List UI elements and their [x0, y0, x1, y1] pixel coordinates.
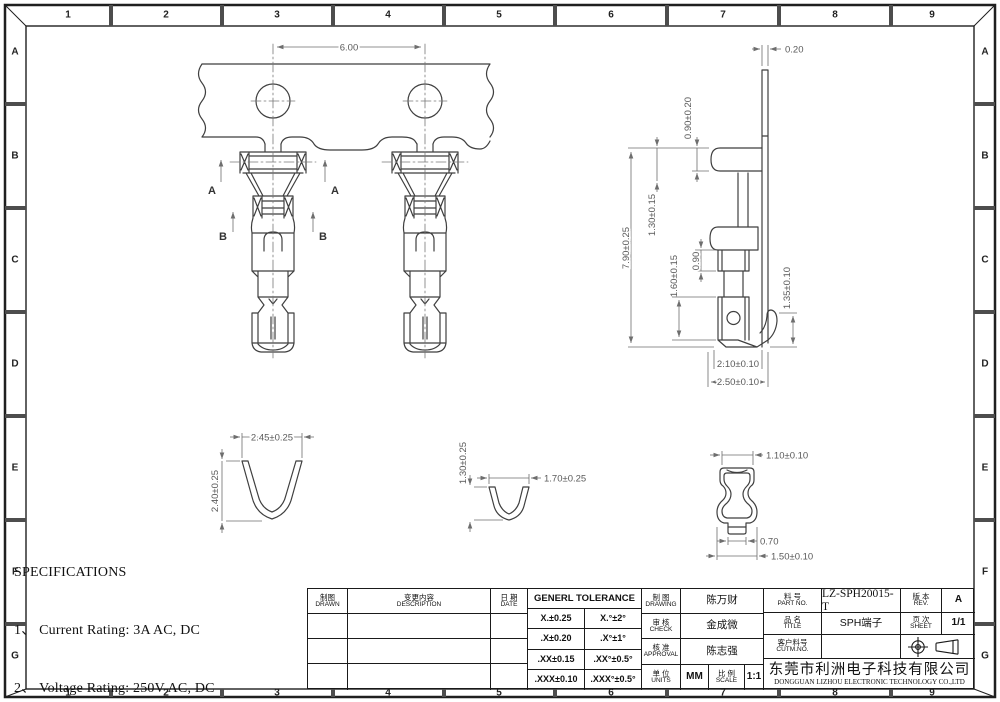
grid-row-label: D: [11, 359, 18, 370]
title-block: 制图 DRAWN 变更内容 DESCRIPTION 日 期 DATE GENER…: [307, 588, 974, 689]
revision-row-cell: [348, 639, 491, 664]
grid-column-label: 9: [929, 10, 935, 21]
grid-column-label: 1: [65, 10, 71, 21]
customer-no-label: 客户料号CUTM.NO.: [764, 635, 822, 659]
check-name: 金成微: [681, 614, 764, 639]
tolerance-title: GENERL TOLERANCE: [534, 594, 635, 604]
third-angle-projection-icon: [906, 636, 970, 658]
revision-row-cell: [348, 664, 491, 690]
revision-row-cell: [491, 664, 528, 690]
company-name-en: DONGGUAN LIZHOU ELECTRONIC TECHNOLOGY CO…: [774, 679, 965, 686]
side-view: [710, 70, 777, 347]
dim-210: 2.10±0.10: [717, 359, 759, 370]
revision-row-cell: [308, 664, 348, 690]
grid-column-label: 6: [608, 10, 614, 21]
description-label-en: DESCRIPTION: [397, 602, 441, 609]
grid-row-label: G: [981, 651, 989, 662]
tolerance-cell: .X±0.20: [528, 629, 585, 650]
scale-label: 比 例SCALE: [709, 665, 745, 690]
crimp-hole: [727, 312, 740, 325]
dim-250: 2.50±0.10: [717, 377, 759, 388]
dim-overall-height: 7.90±0.25: [621, 227, 632, 269]
part-name-value: SPH端子: [822, 613, 901, 635]
grid-column-label: 8: [832, 10, 838, 21]
grid-row-label: C: [11, 255, 18, 266]
rear-view: [717, 468, 757, 534]
grid-column-label: 7: [720, 10, 726, 21]
rev-label: 版 本REV.: [901, 589, 942, 613]
grid-column-label: 5: [496, 10, 502, 21]
dim-090: 0.90: [691, 252, 702, 271]
dim-pitch: 6.00: [340, 43, 359, 54]
dim-secB-height: 1.30±0.25: [458, 442, 469, 484]
dim-secA-width: 2.45±0.25: [251, 433, 293, 444]
revision-row-cell: [308, 614, 348, 639]
scale-value: 1:1: [745, 665, 764, 690]
dim-secB-width: 1.70±0.25: [544, 474, 586, 485]
company-cell: 东莞市利洲电子科技有限公司 DONGGUAN LIZHOU ELECTRONIC…: [764, 659, 975, 690]
grid-row-label: F: [982, 567, 988, 578]
tolerance-cell: .X°±1°: [585, 629, 642, 650]
specifications: SPECIFICATIONS 1、 Current Rating: 3A AC,…: [14, 524, 271, 702]
part-no-value: LZ-SPH20015-T: [822, 589, 901, 613]
units-value: MM: [681, 665, 709, 690]
dim-flange-height: 0.90±0.20: [683, 97, 694, 139]
grid-column-label: 3: [274, 10, 280, 21]
terminal-front: [230, 44, 316, 358]
drawn-label-en: DRAWN: [315, 602, 339, 609]
grid-row-label: A: [981, 47, 988, 58]
spec-item: 1、 Current Rating: 3A AC, DC: [14, 621, 271, 640]
tolerance-header: GENERL TOLERANCE: [528, 589, 642, 609]
part-no-label: 料 号PART NO.: [764, 589, 822, 613]
part-name-label: 品 名TITLE: [764, 613, 822, 635]
revision-row-cell: [491, 639, 528, 664]
grid-column-label: 2: [163, 10, 169, 21]
tolerance-cell: .XX±0.15: [528, 650, 585, 670]
dim-130: 1.30±0.15: [647, 194, 658, 236]
dimension-lines: [221, 45, 797, 560]
section-label-a: A: [331, 185, 339, 197]
tolerance-cell: .XXX±0.10: [528, 670, 585, 690]
sheet-value: 1/1: [942, 613, 975, 635]
grid-row-label: C: [981, 255, 988, 266]
revision-row-cell: [491, 614, 528, 639]
section-a-view: [242, 461, 302, 519]
dim-135: 1.35±0.10: [782, 267, 793, 309]
grid-row-label: E: [982, 463, 989, 474]
grid-row-label: B: [981, 151, 988, 162]
approval-name: 陈志强: [681, 639, 764, 665]
spec-item: 2、 Voltage Rating: 250V AC, DC: [14, 679, 271, 698]
grid-column-label: 4: [385, 10, 391, 21]
customer-no-value: [822, 635, 901, 659]
projection-symbol-cell: [901, 635, 975, 659]
drawing-label: 制 图DRAWING: [642, 589, 681, 614]
carrier-strip-edge: [762, 70, 768, 347]
dim-rear-width: 1.50±0.10: [771, 552, 813, 563]
grid-row-label: A: [11, 47, 18, 58]
units-label: 单 位UNITS: [642, 665, 681, 690]
grid-row-label: B: [11, 151, 18, 162]
approval-label: 核 准APPROVAL: [642, 639, 681, 665]
tolerance-cell: .XX°±0.5°: [585, 650, 642, 670]
grid-column-label: 3: [274, 688, 280, 699]
carrier-strip: [199, 64, 494, 150]
grid-row-label: E: [12, 463, 19, 474]
sheet-label: 页 次SHEET: [901, 613, 942, 635]
revision-row-cell: [308, 639, 348, 664]
drawn-header: 制图 DRAWN: [308, 589, 348, 614]
dim-secA-height: 2.40±0.25: [210, 470, 221, 512]
engineering-drawing-sheet: 6.00 A A B B 0.20 0.90±0.20 7.90±0.25 1.…: [0, 0, 1000, 702]
date-label-en: DATE: [501, 602, 518, 609]
drawing-name: 陈万财: [681, 589, 764, 614]
dim-rear-tab: 0.70: [760, 537, 779, 548]
company-name-cn: 东莞市利洲电子科技有限公司: [769, 663, 971, 678]
terminal-side-profile: [710, 148, 777, 347]
date-header: 日 期 DATE: [491, 589, 528, 614]
dim-160: 1.60±0.15: [669, 255, 680, 297]
tolerance-cell: X.°±2°: [585, 609, 642, 629]
revision-row-cell: [348, 614, 491, 639]
dim-strip-thickness: 0.20: [785, 45, 804, 56]
tolerance-cell: X.±0.25: [528, 609, 585, 629]
check-label: 审 核CHECK: [642, 614, 681, 639]
description-header: 变更内容 DESCRIPTION: [348, 589, 491, 614]
section-label-a: A: [208, 185, 216, 197]
section-b-view: [489, 487, 529, 520]
rev-value: A: [942, 589, 975, 613]
section-label-b: B: [319, 231, 327, 243]
grid-row-label: D: [981, 359, 988, 370]
section-label-b: B: [219, 231, 227, 243]
dim-rear-top: 1.10±0.10: [766, 451, 808, 462]
specifications-title: SPECIFICATIONS: [14, 563, 271, 582]
tolerance-cell: .XXX°±0.5°: [585, 670, 642, 690]
front-view: [199, 44, 494, 358]
